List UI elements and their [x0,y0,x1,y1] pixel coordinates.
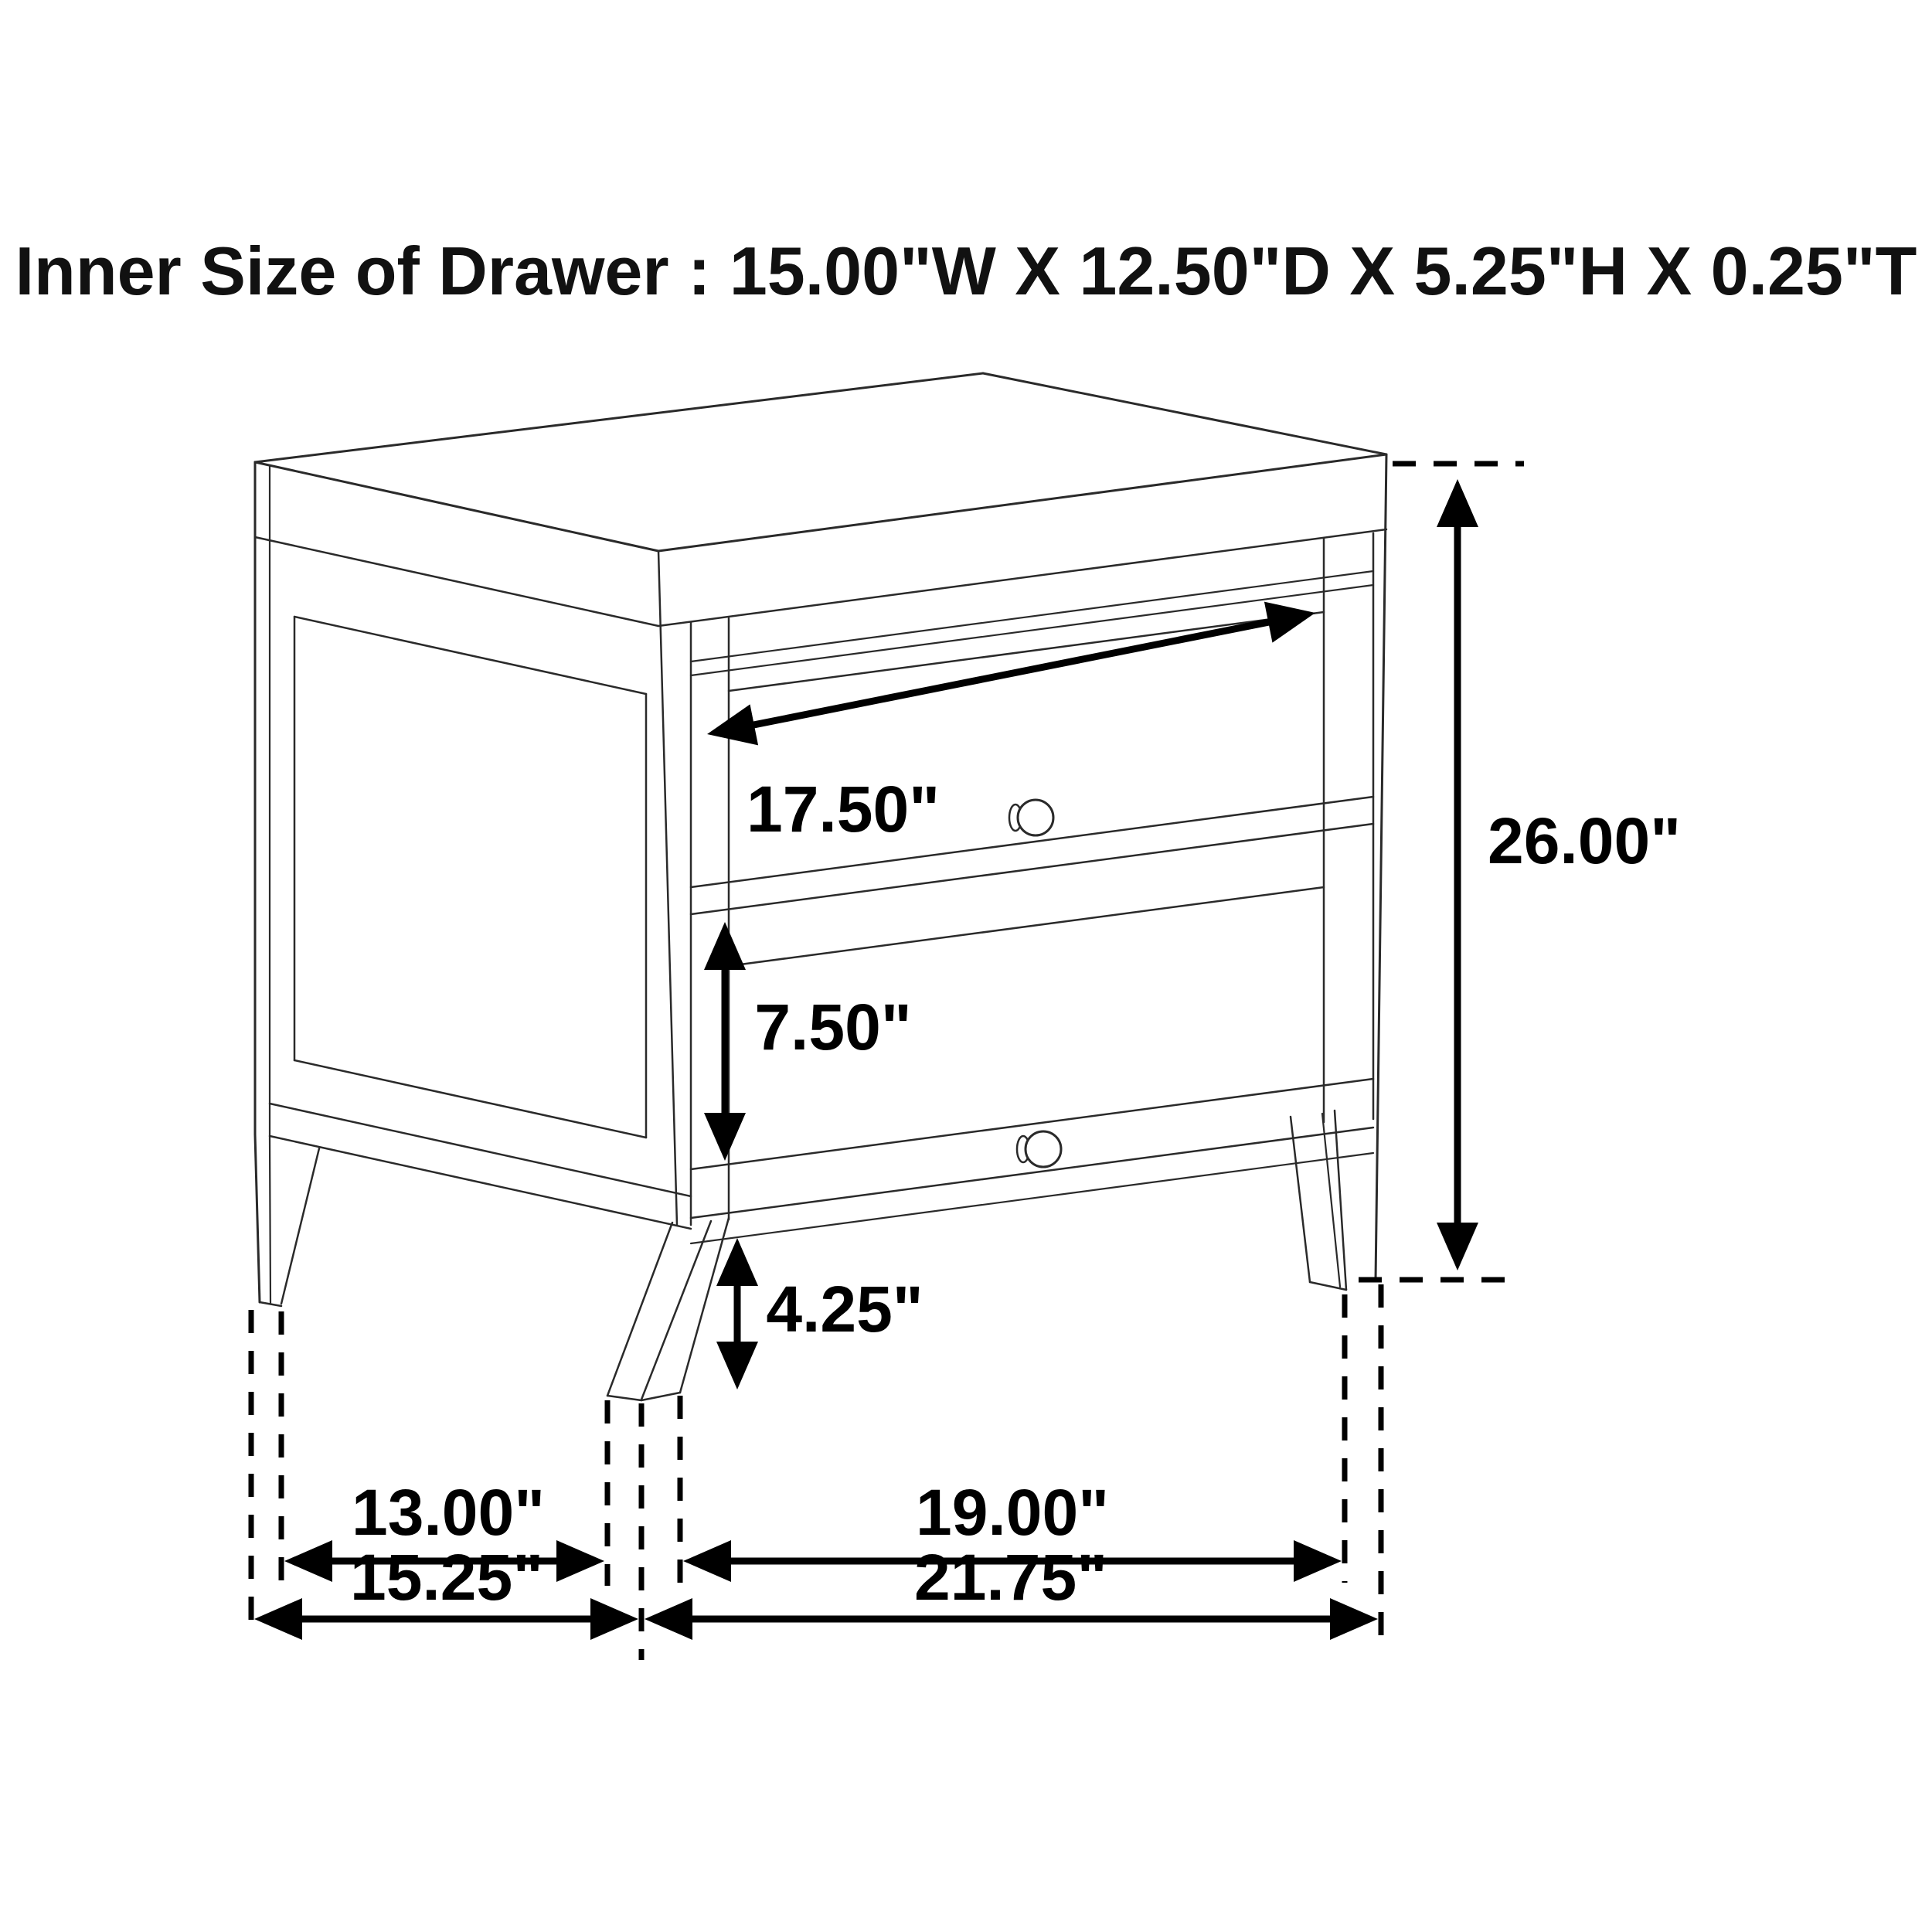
dimension-value: 17.50" [747,773,940,845]
dimension-overall-height: 26.00" [1437,479,1681,1270]
dimension-value: 7.50" [754,991,911,1063]
dimension-value: 4.25" [766,1273,923,1345]
dimension-value: 15.25" [350,1541,543,1614]
drawer-knob-icon [1009,800,1053,835]
dimension-front-outer-width: 21.75" [645,1541,1378,1640]
dimension-leg-height: 4.25" [716,1238,923,1389]
dimension-value: 21.75" [914,1541,1107,1614]
dimension-value: 19.00" [916,1476,1109,1549]
dimension-diagram-page: Inner Size of Drawer : 15.00"W X 12.50"D… [0,0,1932,1932]
nightstand-dimension-drawing: 17.50"26.00"7.50"4.25"13.00"19.00"15.25"… [0,0,1932,1932]
dimension-value: 13.00" [352,1476,545,1549]
drawer-knob-icon [1017,1131,1061,1167]
dimension-value: 26.00" [1488,804,1681,877]
dimension-drawer-front-height: 7.50" [704,922,912,1161]
